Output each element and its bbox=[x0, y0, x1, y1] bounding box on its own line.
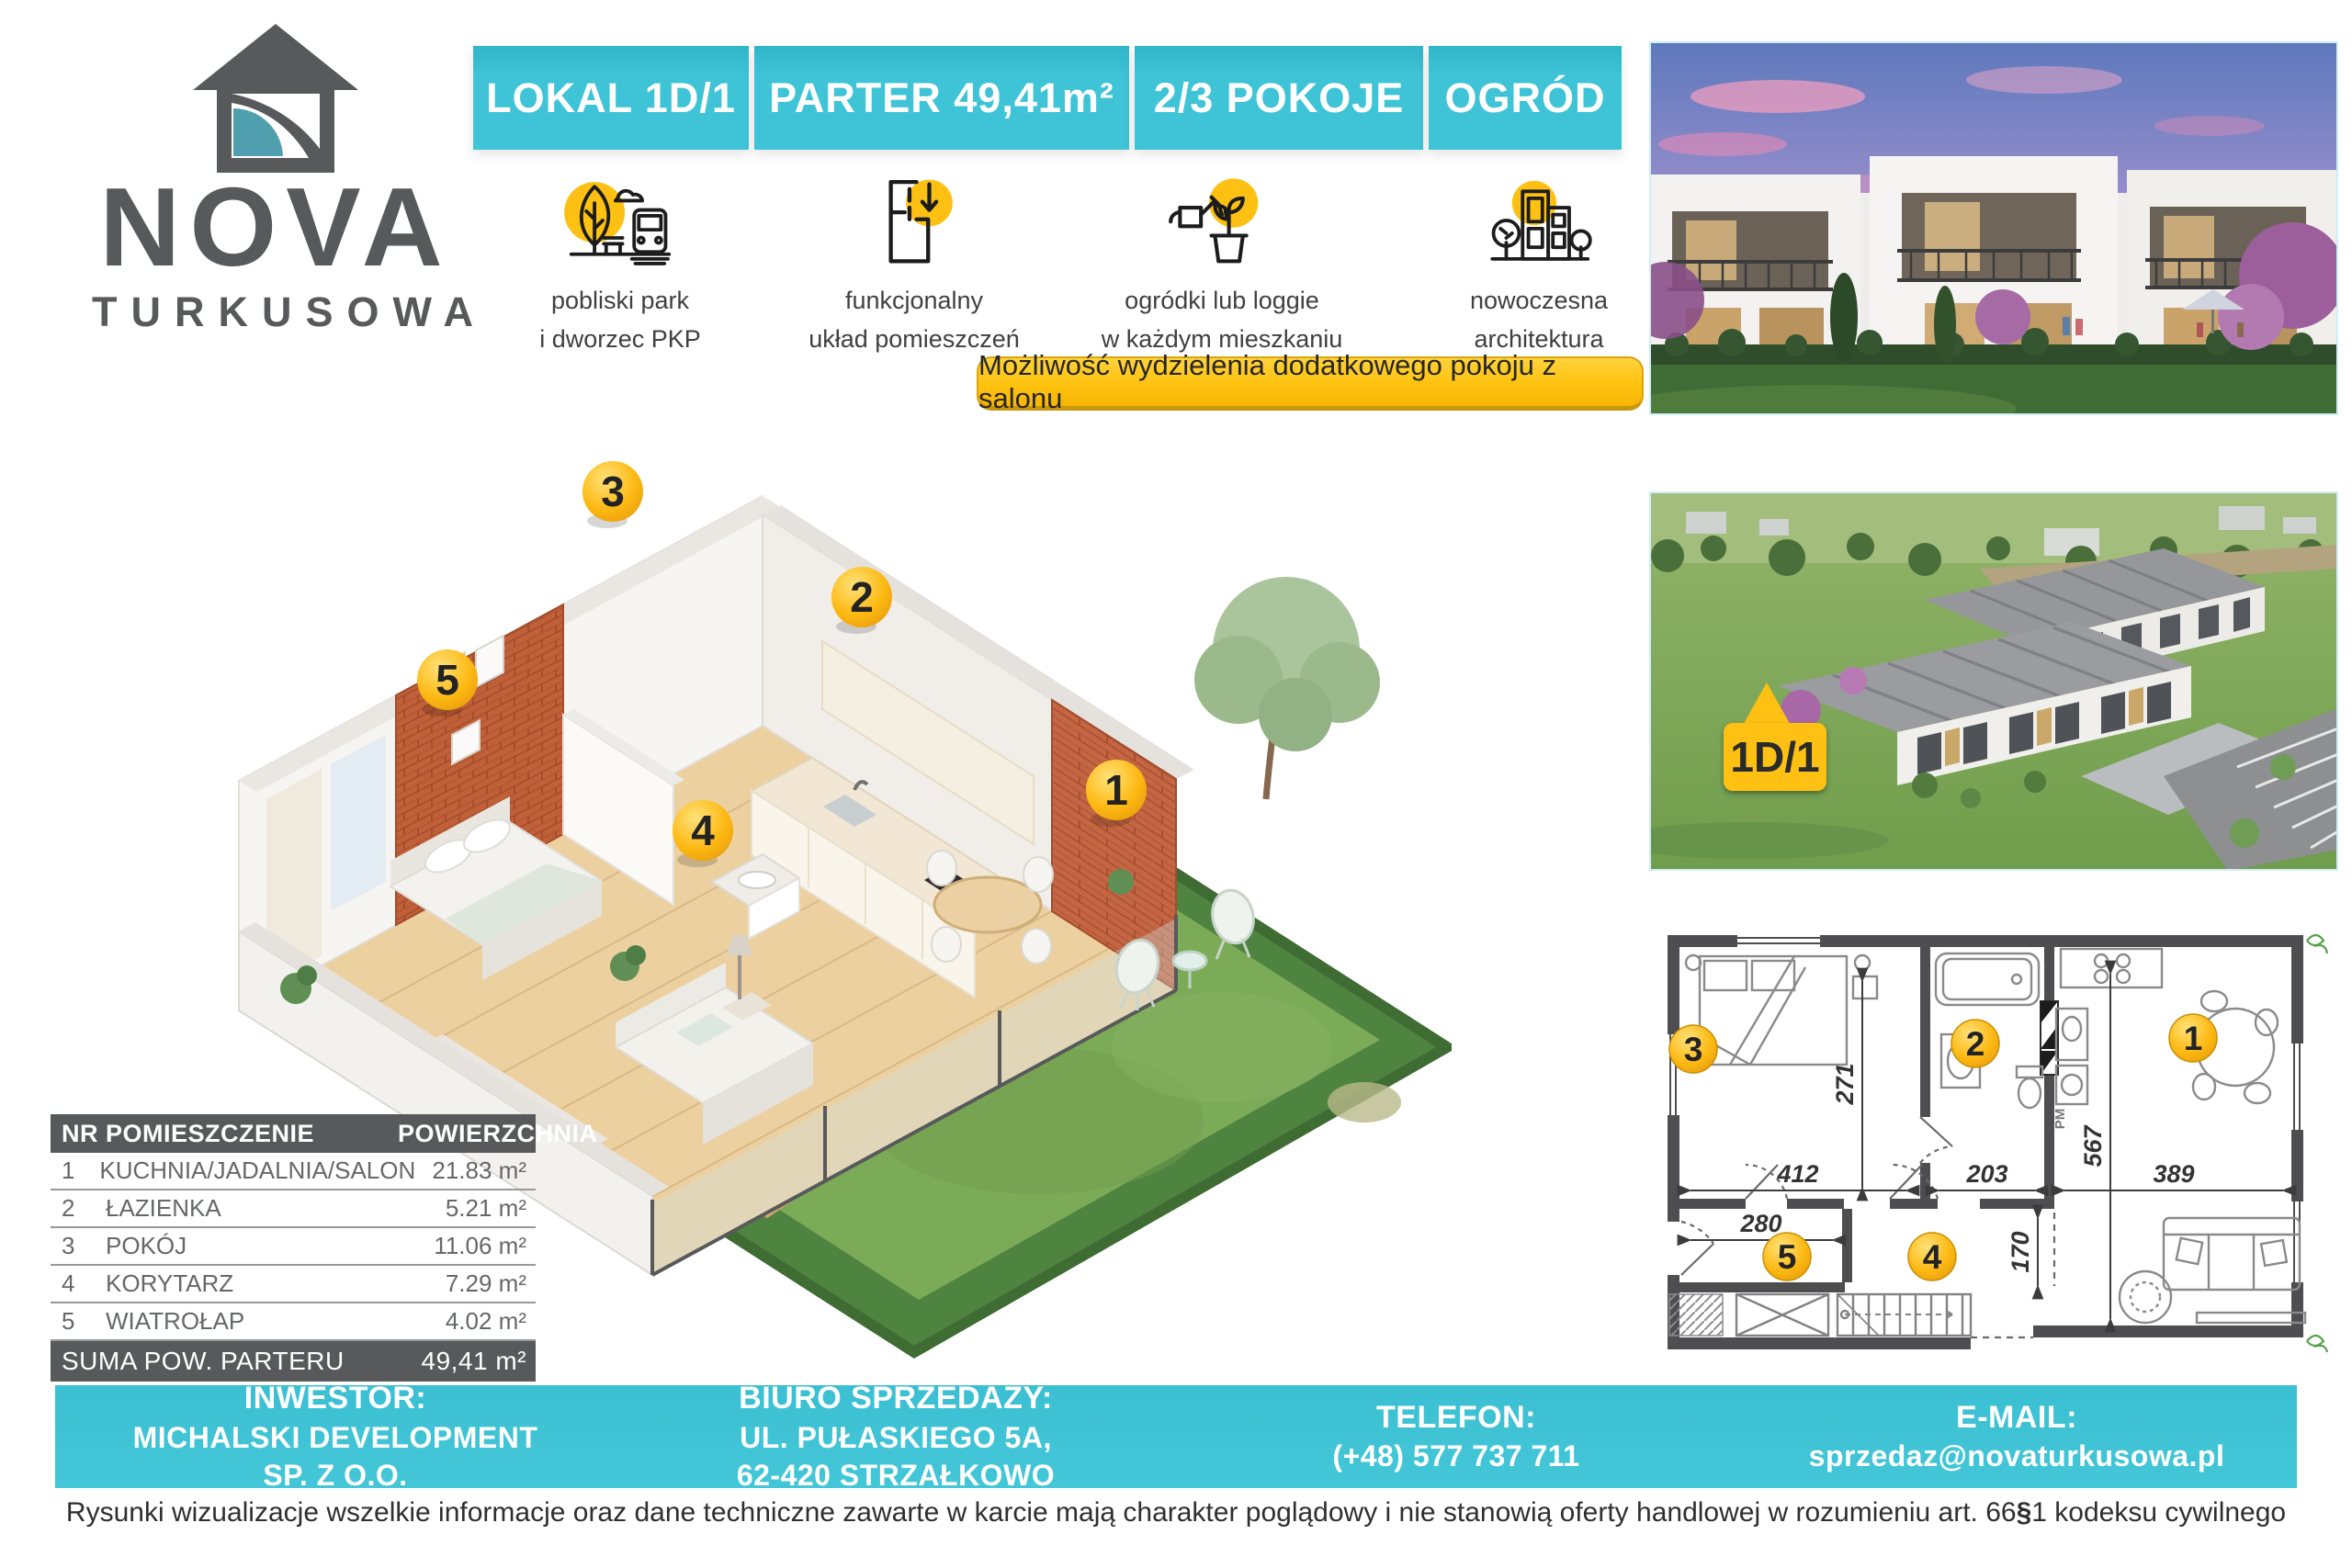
dim-412: 412 bbox=[1776, 1160, 1818, 1188]
col-header-room: POMIESZCZENIE bbox=[106, 1120, 398, 1148]
col-header-area: POWIERZCHNIA bbox=[398, 1120, 536, 1148]
brand-name: NOVA bbox=[92, 171, 459, 283]
brand-subtitle: TURKUSOWA bbox=[92, 288, 459, 336]
svg-text:5: 5 bbox=[1778, 1238, 1797, 1276]
cell-room: KUCHNIA/JADALNIA/SALON bbox=[99, 1156, 415, 1185]
svg-text:4: 4 bbox=[1923, 1238, 1942, 1276]
header-segment-parter: PARTER 49,41m² bbox=[754, 46, 1129, 150]
svg-text:3: 3 bbox=[601, 468, 625, 515]
cell-area: 21.83 m² bbox=[415, 1156, 536, 1185]
table-header-row: NR POMIESZCZENIE POWIERZCHNIA bbox=[51, 1114, 536, 1153]
feature-architecture: nowoczesna architektura bbox=[1383, 173, 1695, 359]
room-badge-3: 3 bbox=[582, 461, 643, 528]
entry-porch bbox=[1669, 1294, 1723, 1336]
cell-nr: 4 bbox=[51, 1269, 106, 1298]
cell-room: ŁAZIENKA bbox=[106, 1194, 398, 1223]
svg-text:2: 2 bbox=[1966, 1025, 1985, 1063]
garden-tree bbox=[1194, 577, 1380, 799]
watering-plant-icon bbox=[1163, 173, 1281, 268]
cell-nr: 1 bbox=[51, 1156, 99, 1185]
unit-callout-label: 1D/1 bbox=[1724, 723, 1826, 791]
svg-text:1: 1 bbox=[2184, 1020, 2203, 1057]
feature-caption-line1: pobliski park bbox=[464, 282, 776, 321]
plan2d-badge-3: 3 bbox=[1669, 1025, 1717, 1073]
table-row: 4 KORYTARZ 7.29 m² bbox=[51, 1266, 536, 1303]
room-area-table: NR POMIESZCZENIE POWIERZCHNIA 1 KUCHNIA/… bbox=[51, 1114, 536, 1382]
building-photo-evening bbox=[1649, 41, 2338, 415]
dim-203: 203 bbox=[1965, 1160, 2007, 1188]
email-address: sprzedaz@novaturkusowa.pl bbox=[1809, 1438, 2225, 1475]
phone-label: TELEFON: bbox=[1376, 1398, 1536, 1438]
investor-name: MICHALSKI DEVELOPMENT bbox=[133, 1419, 538, 1457]
header-segment-lokal: LOKAL 1D/1 bbox=[473, 46, 749, 150]
footer-office: BIURO SPRZEDAZY: UL. PUŁASKIEGO 5A, 62-4… bbox=[616, 1385, 1176, 1488]
unit-callout-pointer bbox=[1741, 682, 1792, 728]
office-street: UL. PUŁASKIEGO 5A, bbox=[740, 1419, 1052, 1457]
feature-layout: funkcjonalny układ pomieszczeń bbox=[758, 173, 1070, 359]
dim-280: 280 bbox=[1739, 1210, 1781, 1237]
legal-disclaimer: Rysunki wizualizacje wszelkie informacje… bbox=[0, 1497, 2352, 1529]
cell-area: 7.29 m² bbox=[398, 1269, 536, 1298]
table-row: 3 POKÓJ 11.06 m² bbox=[51, 1228, 536, 1266]
feature-park: pobliski park i dworzec PKP bbox=[464, 173, 776, 359]
header-segment-pokoje: 2/3 POKOJE bbox=[1135, 46, 1423, 150]
floorplan-arrow-icon bbox=[855, 173, 973, 268]
footer-email: E-MAIL: sprzedaz@novaturkusowa.pl bbox=[1736, 1385, 2297, 1488]
office-label: BIURO SPRZEDAZY: bbox=[739, 1379, 1053, 1419]
park-and-train-icon bbox=[561, 173, 679, 268]
disclaimer-text-2: 1 kodeksu cywilnego bbox=[2031, 1497, 2286, 1528]
sum-area: 49,41 m² bbox=[398, 1347, 536, 1376]
plan2d-badge-5: 5 bbox=[1763, 1233, 1811, 1280]
cell-room: WIATROŁAP bbox=[106, 1307, 398, 1336]
cell-area: 5.21 m² bbox=[398, 1194, 536, 1223]
footer-phone: TELEFON: (+48) 577 737 711 bbox=[1176, 1385, 1736, 1488]
plan2d-badge-2: 2 bbox=[1951, 1020, 1999, 1067]
feature-caption-line1: funkcjonalny bbox=[758, 282, 1070, 321]
cell-nr: 3 bbox=[51, 1232, 106, 1260]
svg-text:4: 4 bbox=[691, 807, 715, 854]
plan2d-badge-1: 1 bbox=[2169, 1014, 2217, 1062]
dim-567: 567 bbox=[2079, 1123, 2107, 1167]
dim-170: 170 bbox=[2007, 1231, 2034, 1272]
header-bar: LOKAL 1D/1 PARTER 49,41m² 2/3 POKOJE OGR… bbox=[473, 46, 1622, 150]
sum-label: SUMA POW. PARTERU bbox=[51, 1347, 398, 1376]
phone-number: (+48) 577 737 711 bbox=[1332, 1438, 1579, 1475]
pm-label: PM bbox=[2052, 1109, 2068, 1130]
svg-text:2: 2 bbox=[850, 573, 874, 621]
dim-389: 389 bbox=[2153, 1160, 2194, 1188]
table-row: 5 WIATROŁAP 4.02 m² bbox=[51, 1303, 536, 1341]
cell-nr: 2 bbox=[51, 1194, 106, 1223]
logo: NOVA TURKUSOWA bbox=[92, 20, 459, 351]
building-photo-aerial: 1D/1 bbox=[1649, 491, 2338, 871]
cell-room: POKÓJ bbox=[106, 1232, 398, 1260]
feature-caption-line1: nowoczesna bbox=[1383, 282, 1695, 321]
investor-label: INWESTOR: bbox=[244, 1379, 426, 1419]
cell-area: 4.02 m² bbox=[398, 1307, 536, 1336]
cell-area: 11.06 m² bbox=[398, 1232, 536, 1260]
contact-footer: INWESTOR: MICHALSKI DEVELOPMENT SP. Z O.… bbox=[55, 1385, 2297, 1488]
cell-nr: 5 bbox=[51, 1307, 106, 1336]
footer-investor: INWESTOR: MICHALSKI DEVELOPMENT SP. Z O.… bbox=[55, 1385, 616, 1488]
col-header-nr: NR bbox=[51, 1120, 106, 1148]
svg-text:1: 1 bbox=[1104, 766, 1128, 814]
office-city: 62-420 STRZAŁKOWO bbox=[737, 1457, 1055, 1495]
feature-caption-line1: ogródki lub loggie bbox=[1066, 282, 1378, 321]
cell-room: KORYTARZ bbox=[106, 1269, 398, 1298]
feature-caption-line2: i dworzec PKP bbox=[464, 321, 776, 359]
dim-271: 271 bbox=[1831, 1063, 1859, 1105]
email-label: E-MAIL: bbox=[1956, 1398, 2077, 1438]
header-segment-ogrod: OGRÓD bbox=[1429, 46, 1622, 150]
plan2d-badge-4: 4 bbox=[1908, 1233, 1956, 1280]
logo-house-icon bbox=[184, 20, 367, 176]
promo-banner: Możliwość wydzielenia dodatkowego pokoju… bbox=[977, 356, 1644, 411]
disclaimer-text: Rysunki wizualizacje wszelkie informacje… bbox=[66, 1497, 2017, 1528]
table-row: 1 KUCHNIA/JADALNIA/SALON 21.83 m² bbox=[51, 1153, 536, 1190]
feature-garden: ogródki lub loggie w każdym mieszkaniu bbox=[1066, 173, 1378, 359]
svg-text:5: 5 bbox=[435, 656, 459, 704]
table-sum-row: SUMA POW. PARTERU 49,41 m² bbox=[51, 1341, 536, 1382]
modern-buildings-icon bbox=[1480, 173, 1598, 268]
floorplan-2d: 412 203 389 280 271 567 170 PM 3 2 1 5 bbox=[1649, 926, 2338, 1358]
property-card-lokal-1d1: NOVA TURKUSOWA LOKAL 1D/1 PARTER 49,41m²… bbox=[0, 0, 2352, 1568]
window bbox=[331, 735, 386, 911]
investor-suffix: SP. Z O.O. bbox=[263, 1457, 407, 1495]
section-sign: § bbox=[2017, 1497, 2032, 1528]
table-row: 2 ŁAZIENKA 5.21 m² bbox=[51, 1190, 536, 1228]
svg-text:3: 3 bbox=[1684, 1031, 1703, 1068]
